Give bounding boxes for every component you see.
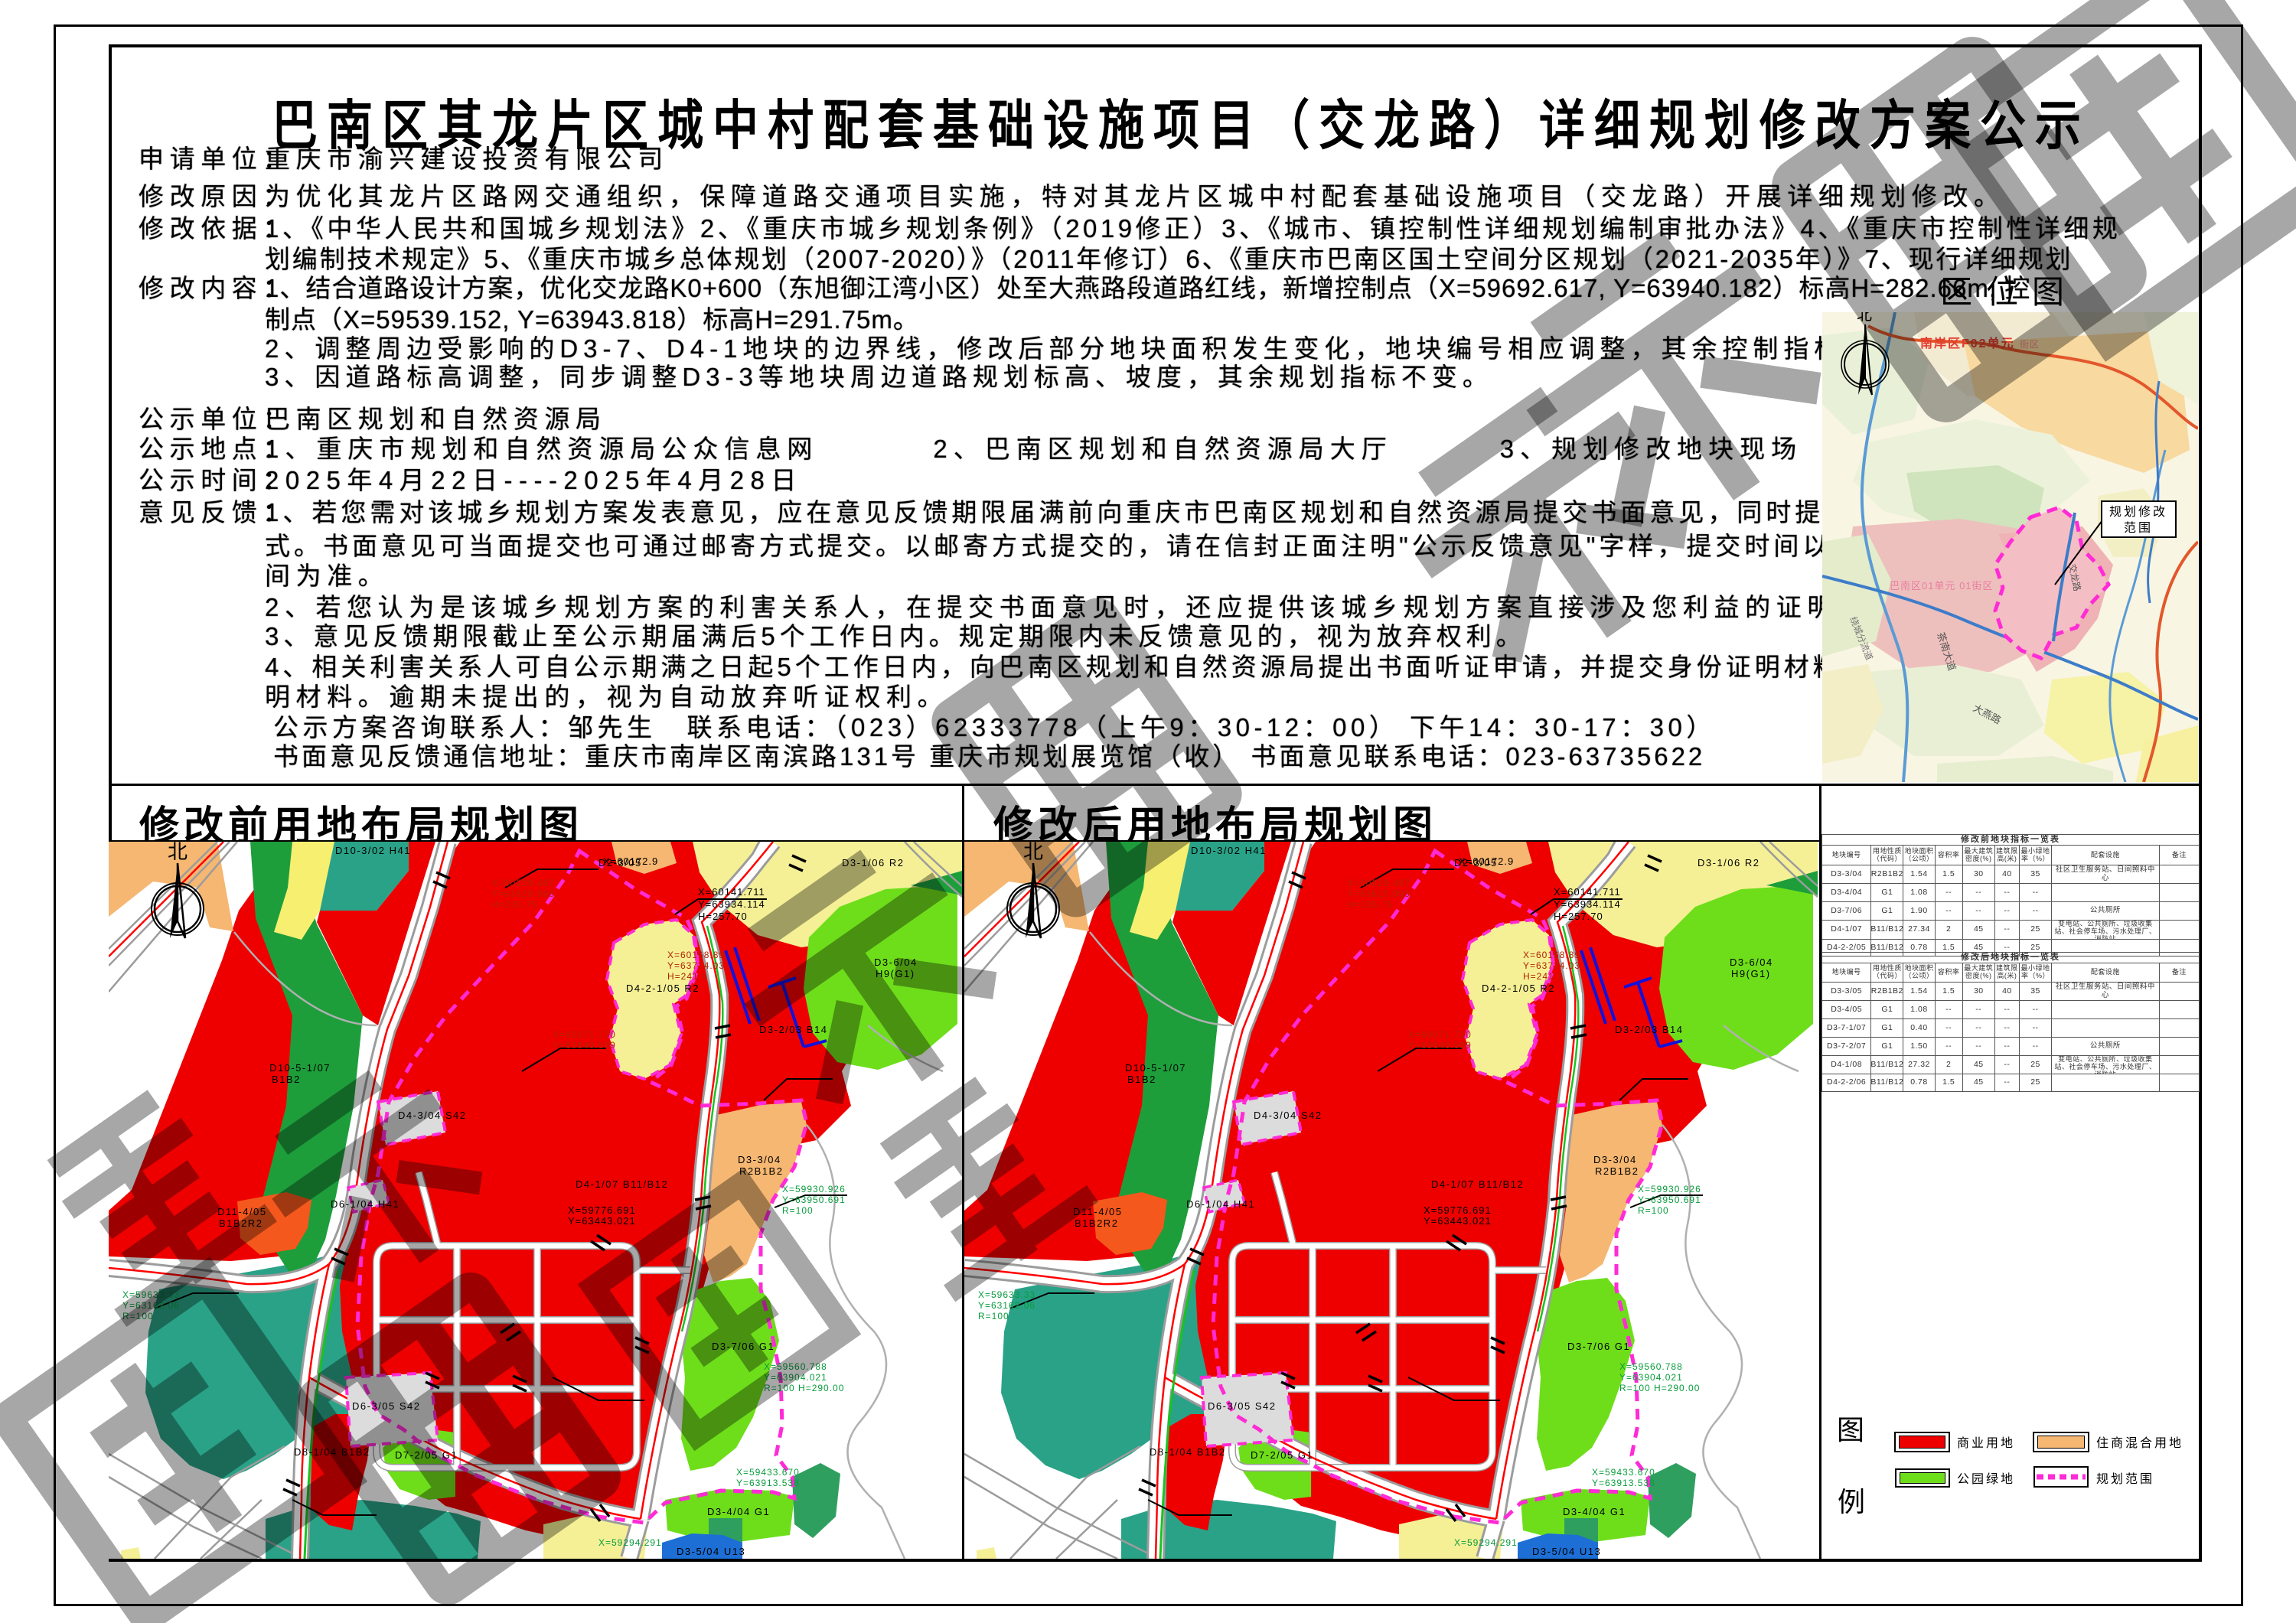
svg-text:范围: 范围 — [2124, 521, 2153, 535]
svg-text:南岸区F02单元: 南岸区F02单元 — [1920, 336, 2015, 350]
svg-text:规划修改: 规划修改 — [2109, 505, 2167, 519]
svg-text:北: 北 — [1857, 312, 1872, 324]
svg-text:巴南区01单元 01街区: 巴南区01单元 01街区 — [1890, 580, 1994, 592]
svg-text:街区: 街区 — [2020, 339, 2040, 350]
